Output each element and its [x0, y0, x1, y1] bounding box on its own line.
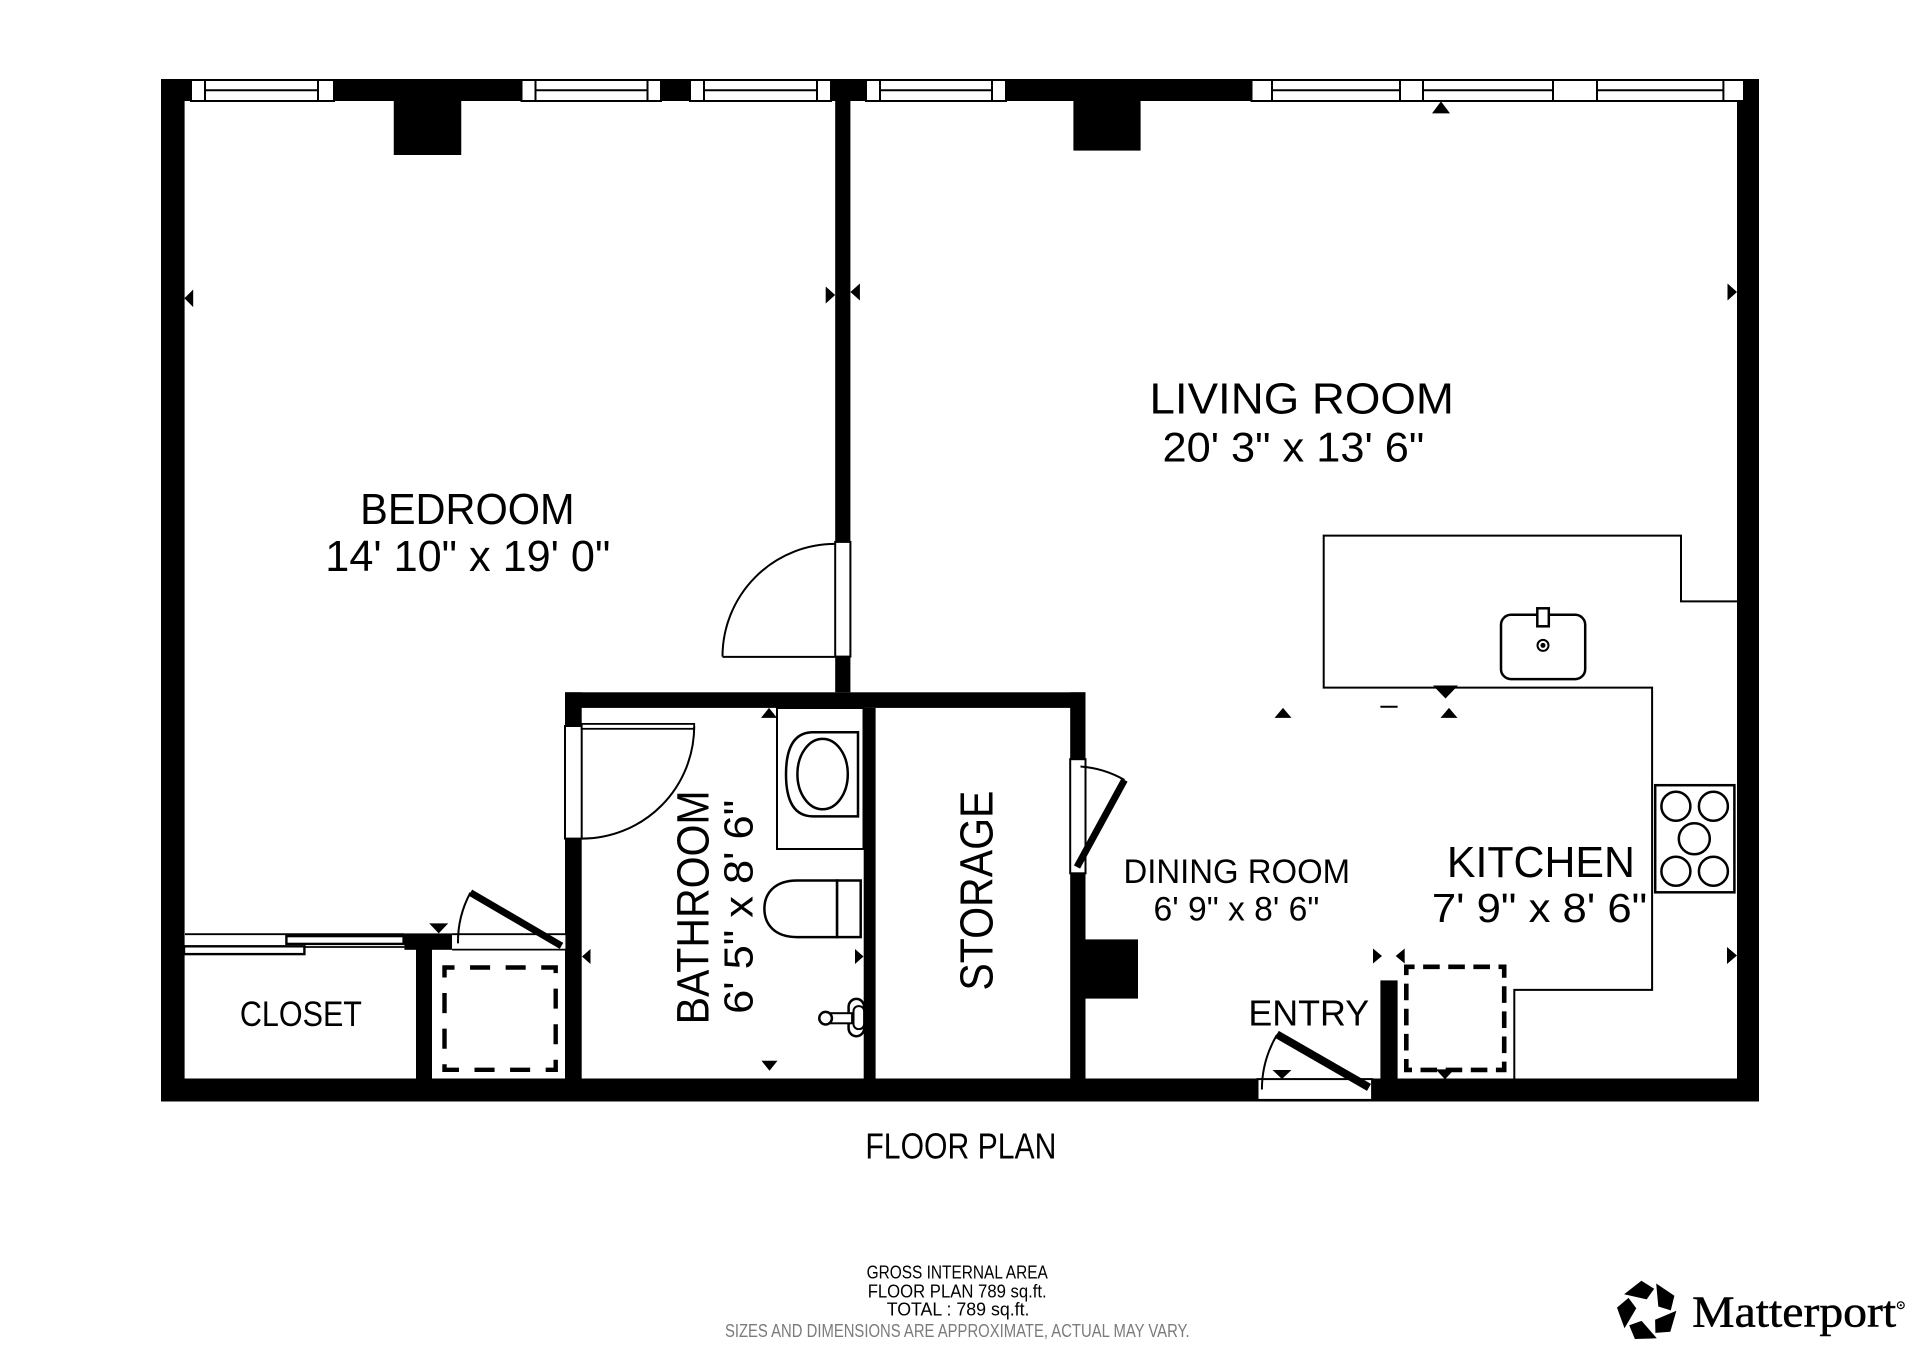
- svg-text:7' 9" x 8' 6": 7' 9" x 8' 6": [1432, 885, 1647, 931]
- svg-text:BATHROOM: BATHROOM: [667, 790, 718, 1024]
- svg-text:FLOOR PLAN: FLOOR PLAN: [865, 1125, 1056, 1166]
- svg-text:DINING ROOM: DINING ROOM: [1124, 853, 1351, 891]
- svg-text:20' 3" x 13' 6": 20' 3" x 13' 6": [1163, 424, 1425, 471]
- svg-text:6' 5" x 8' 6": 6' 5" x 8' 6": [716, 800, 762, 1014]
- svg-text:KITCHEN: KITCHEN: [1447, 838, 1635, 887]
- svg-text:TOTAL : 789 sq.ft.: TOTAL : 789 sq.ft.: [887, 1299, 1030, 1319]
- svg-text:14' 10" x 19' 0": 14' 10" x 19' 0": [325, 532, 610, 581]
- svg-text:LIVING ROOM: LIVING ROOM: [1150, 374, 1454, 423]
- svg-text:Matterport: Matterport: [1692, 1288, 1896, 1337]
- svg-text:6' 9" x 8' 6": 6' 9" x 8' 6": [1154, 891, 1320, 929]
- svg-text:BEDROOM: BEDROOM: [360, 485, 575, 534]
- svg-text:SIZES AND DIMENSIONS ARE APPRO: SIZES AND DIMENSIONS ARE APPROXIMATE, AC…: [725, 1321, 1190, 1341]
- svg-text:ENTRY: ENTRY: [1248, 993, 1369, 1034]
- svg-text:STORAGE: STORAGE: [951, 791, 1003, 991]
- svg-text:CLOSET: CLOSET: [240, 995, 362, 1034]
- svg-text:GROSS INTERNAL AREA: GROSS INTERNAL AREA: [867, 1263, 1048, 1283]
